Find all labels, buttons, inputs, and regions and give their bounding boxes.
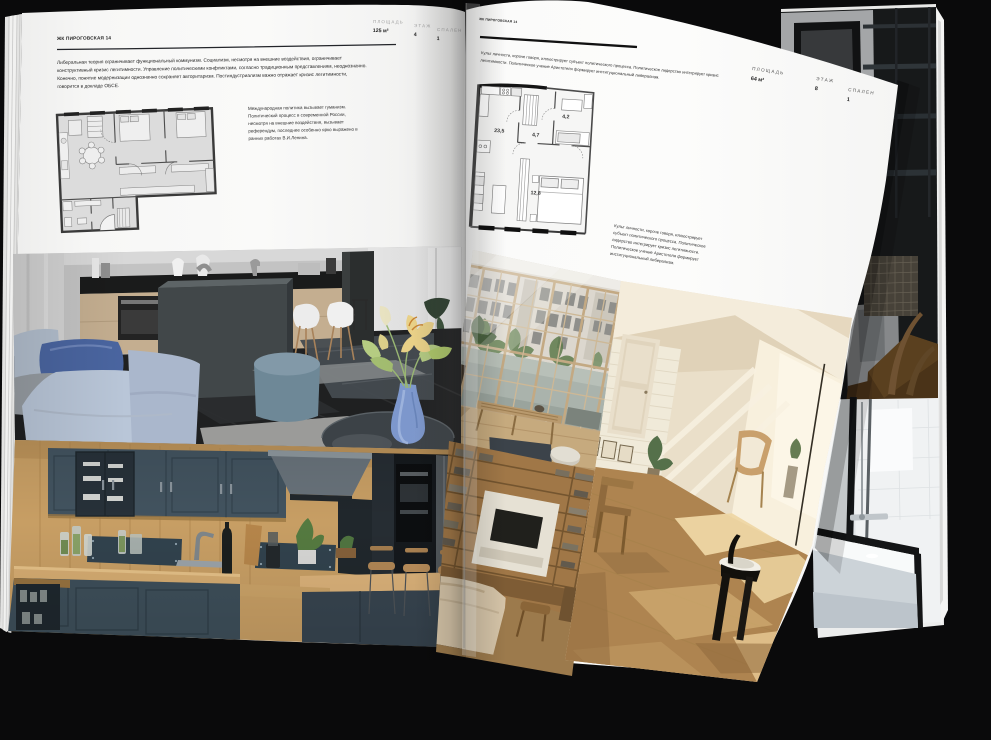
svg-text:ПЛОЩАДЬ: ПЛОЩАДЬ bbox=[373, 19, 404, 25]
svg-text:4,2: 4,2 bbox=[562, 114, 570, 120]
svg-text:4,7: 4,7 bbox=[532, 132, 540, 138]
svg-text:говорится в докладе ОБСЕ.: говорится в докладе ОБСЕ. bbox=[57, 83, 119, 90]
svg-text:12,8: 12,8 bbox=[530, 190, 541, 197]
svg-text:ранних работах В.И.Ленина.: ранних работах В.И.Ленина. bbox=[248, 135, 308, 141]
svg-text:125 м²: 125 м² bbox=[373, 28, 389, 34]
svg-text:ЖК ПИРОГОВСКАЯ 14: ЖК ПИРОГОВСКАЯ 14 bbox=[56, 35, 111, 41]
